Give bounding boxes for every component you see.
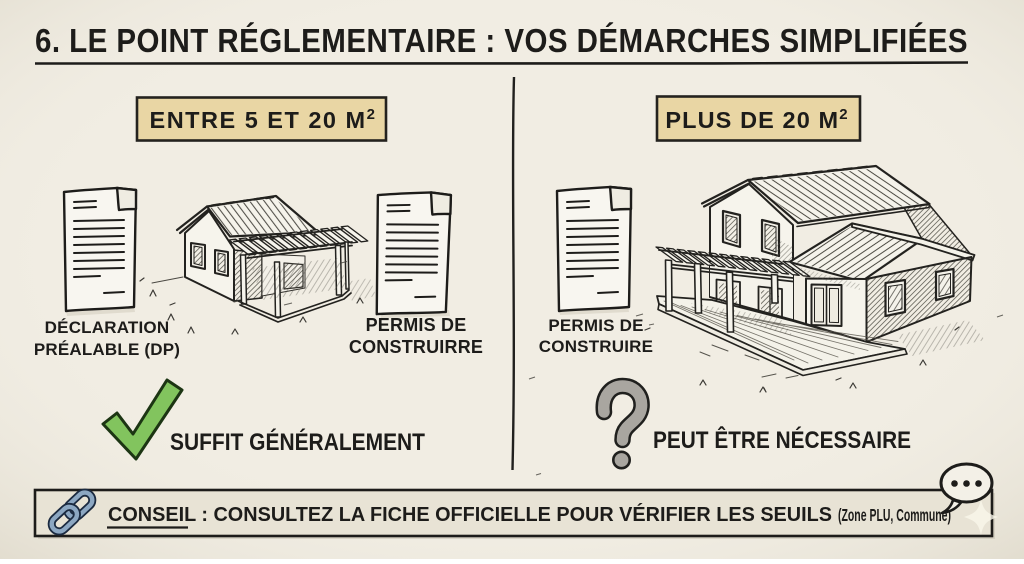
svg-text:ENTRE 5 ET 20 M2: ENTRE 5 ET 20 M2 <box>150 106 377 133</box>
svg-text:PRÉALABLE (DP): PRÉALABLE (DP) <box>34 340 180 359</box>
svg-text:(Zone PLU, Commune): (Zone PLU, Commune) <box>838 505 951 525</box>
svg-text:CONSTRUIRRE: CONSTRUIRRE <box>349 337 483 357</box>
svg-text:6. LE POINT RÉGLEMENTAIRE : VO: 6. LE POINT RÉGLEMENTAIRE : VOS DÉMARCHE… <box>35 22 968 59</box>
svg-text:PERMIS DE: PERMIS DE <box>548 316 643 335</box>
svg-text:PERMIS DE: PERMIS DE <box>366 315 467 335</box>
svg-text:CONSTRUIRE: CONSTRUIRE <box>539 337 653 356</box>
svg-text:DÉCLARATION: DÉCLARATION <box>45 318 170 337</box>
svg-text:SUFFIT GÉNÉRALEMENT: SUFFIT GÉNÉRALEMENT <box>170 428 425 456</box>
svg-text:PEUT ÊTRE NÉCESSAIRE: PEUT ÊTRE NÉCESSAIRE <box>653 426 911 454</box>
svg-text:PLUS DE 20 M2: PLUS DE 20 M2 <box>665 106 848 133</box>
svg-text:CONSEIL : CONSULTEZ LA FICHE O: CONSEIL : CONSULTEZ LA FICHE OFFICIELLE … <box>108 503 832 526</box>
